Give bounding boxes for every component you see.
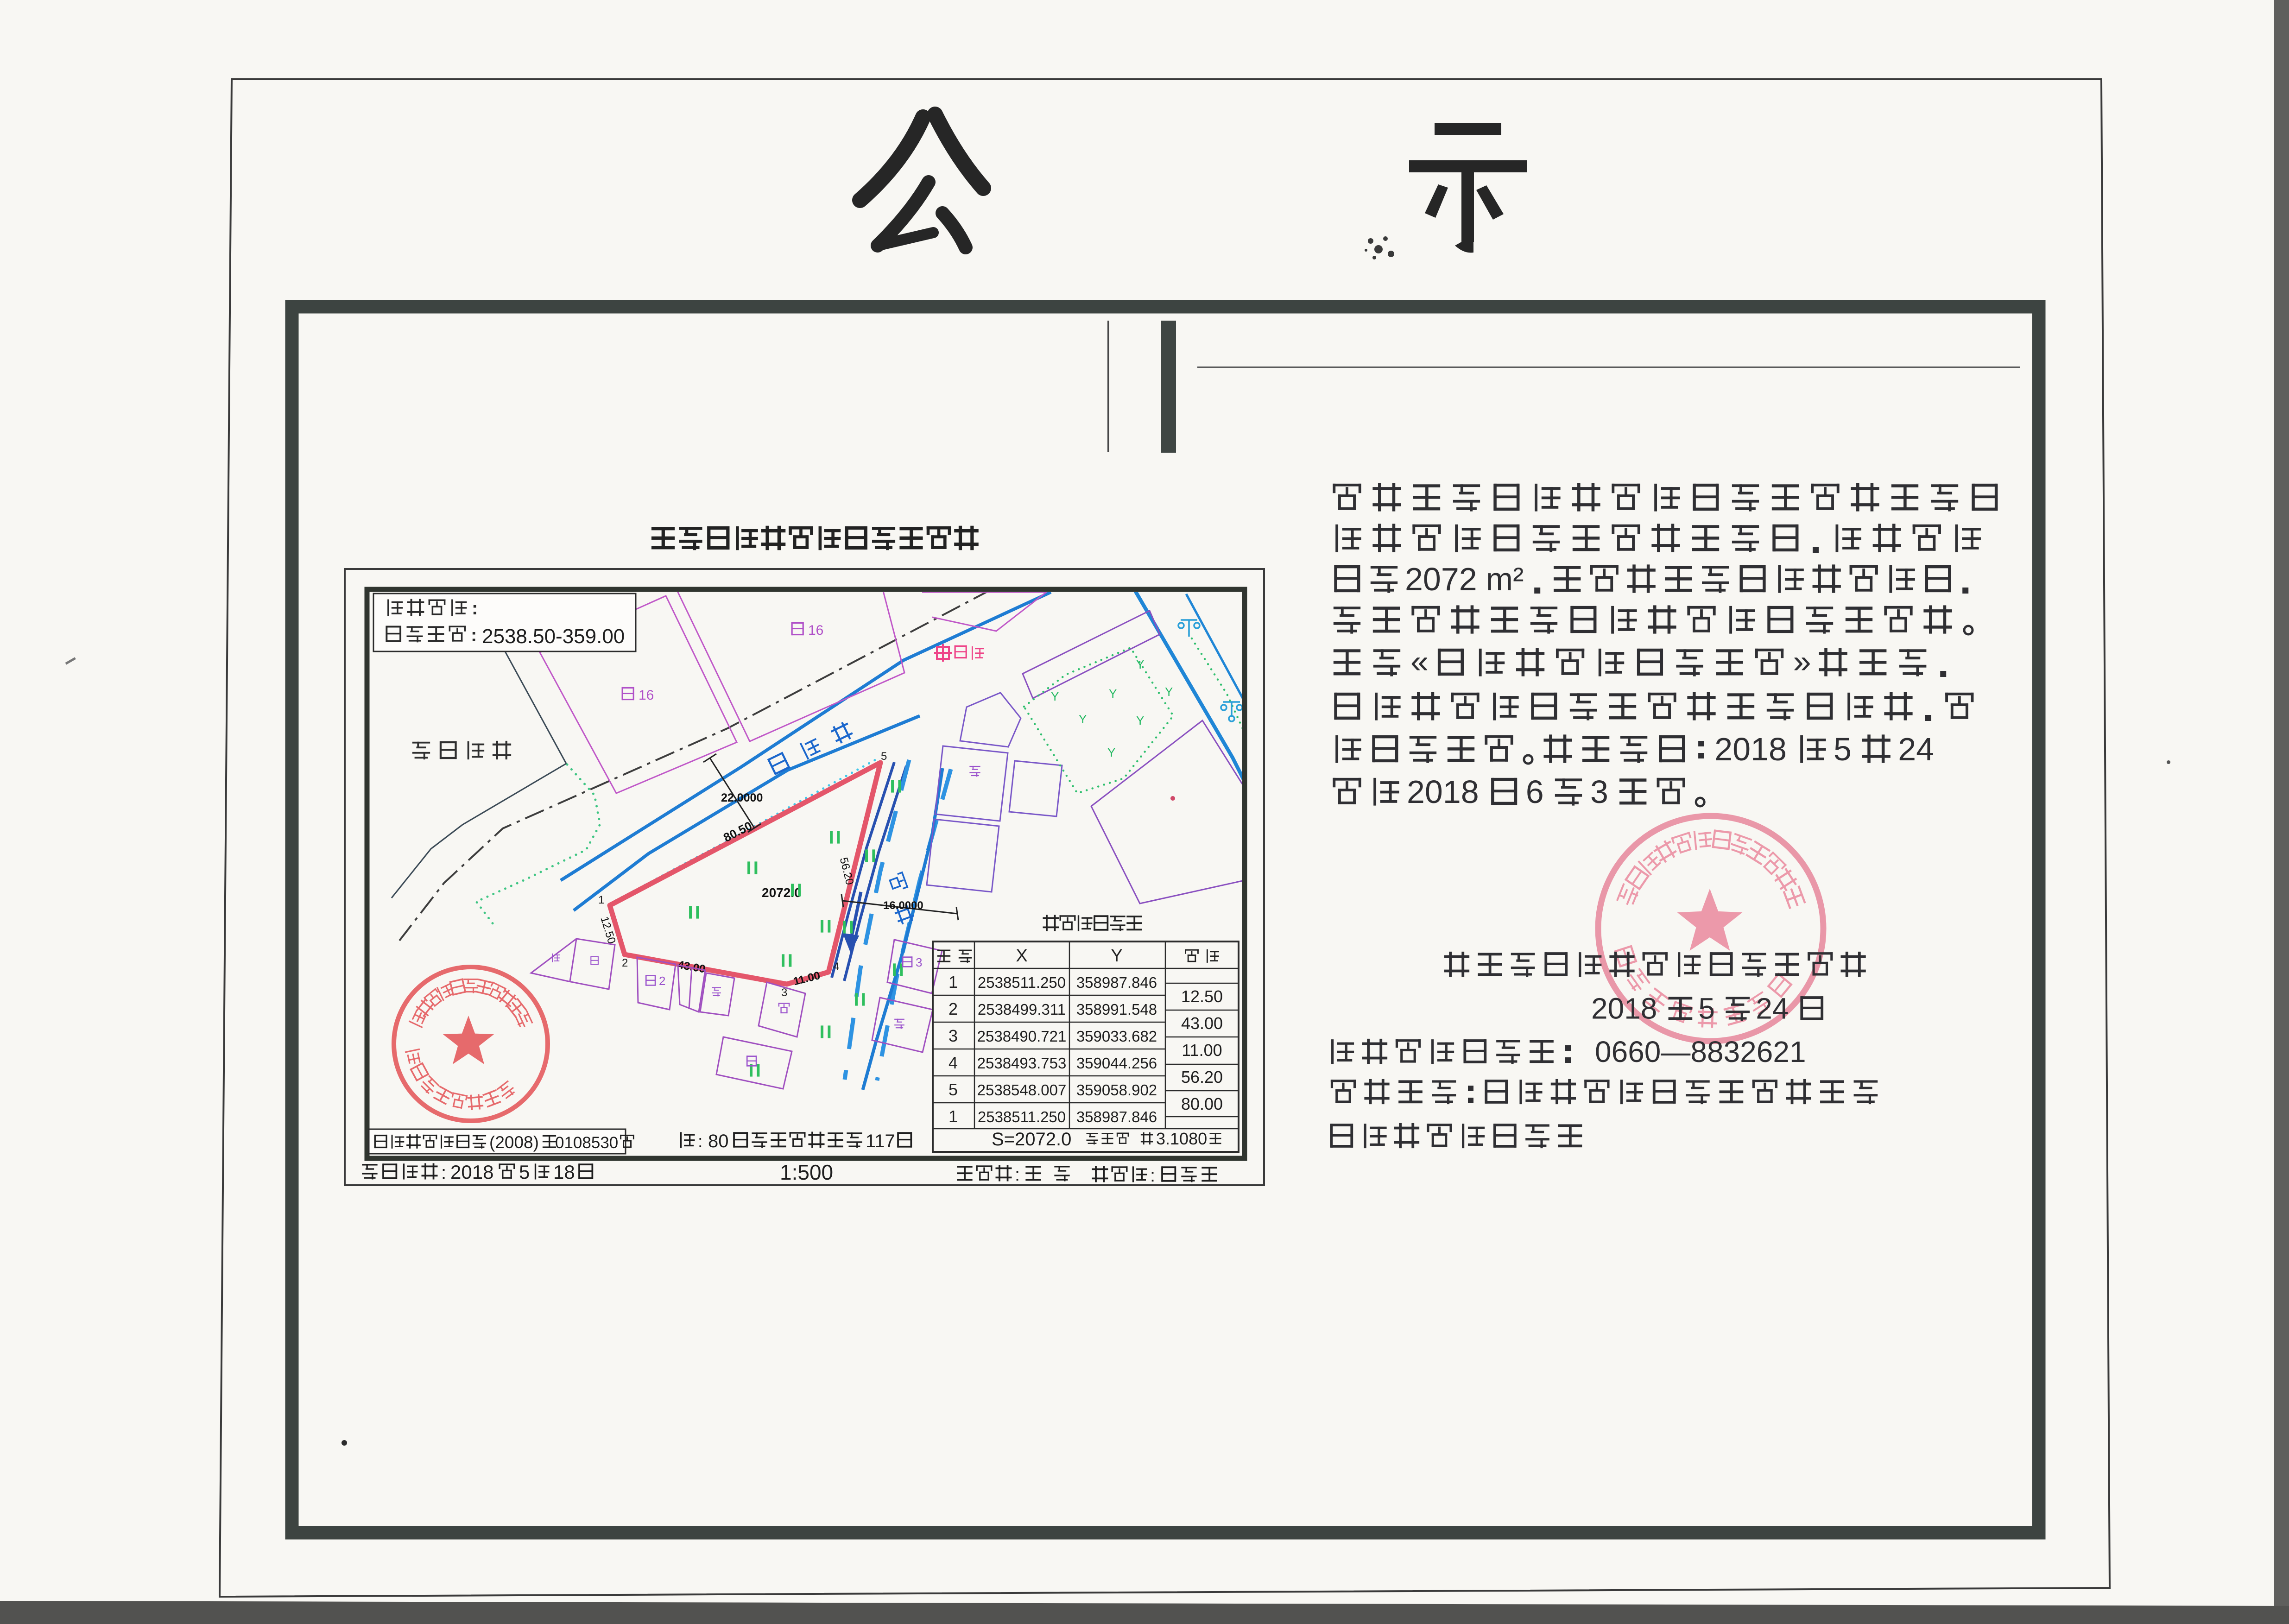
svg-text:5: 5 (1698, 992, 1715, 1025)
svg-text:117: 117 (866, 1131, 895, 1151)
svg-text:Y: Y (1165, 685, 1173, 699)
svg-text:2538.50-359.00: 2538.50-359.00 (482, 625, 625, 648)
svg-text:12.50: 12.50 (1181, 987, 1223, 1006)
svg-text:2538490.721: 2538490.721 (977, 1028, 1067, 1045)
svg-text:22.0000: 22.0000 (721, 791, 763, 804)
svg-text:4: 4 (833, 960, 839, 973)
svg-text:2538548.007: 2538548.007 (977, 1081, 1067, 1099)
svg-text:5: 5 (881, 750, 887, 763)
svg-text:359044.256: 359044.256 (1076, 1055, 1157, 1072)
svg-text:358991.548: 358991.548 (1076, 1001, 1157, 1018)
svg-text:11.00: 11.00 (1182, 1041, 1222, 1060)
svg-text:24: 24 (1756, 992, 1789, 1025)
svg-text:2018: 2018 (1407, 774, 1479, 810)
svg-text::: : (698, 1132, 703, 1151)
svg-text:358987.846: 358987.846 (1076, 1108, 1157, 1125)
svg-text:2538493.753: 2538493.753 (977, 1055, 1067, 1072)
svg-text:2072.0: 2072.0 (762, 885, 802, 900)
svg-text:Y: Y (1136, 657, 1144, 671)
svg-text:5: 5 (519, 1161, 530, 1183)
svg-text:2538511.250: 2538511.250 (978, 1108, 1066, 1125)
svg-text:1: 1 (948, 1107, 958, 1126)
svg-text:2: 2 (948, 999, 958, 1018)
svg-text:1: 1 (948, 973, 958, 992)
svg-text:1:500: 1:500 (780, 1160, 833, 1184)
svg-text:2018: 2018 (450, 1161, 493, 1183)
svg-text:3: 3 (948, 1026, 958, 1045)
svg-text:Y: Y (1079, 712, 1087, 726)
svg-text:Y: Y (1109, 687, 1117, 701)
svg-text:5: 5 (1834, 731, 1852, 767)
svg-text:80: 80 (708, 1131, 729, 1151)
svg-text:»: » (1793, 643, 1811, 679)
svg-text:S=2072.0: S=2072.0 (992, 1129, 1071, 1150)
svg-text:6: 6 (1526, 774, 1544, 810)
svg-text:Y: Y (1111, 946, 1122, 966)
svg-text:Y: Y (1051, 689, 1059, 703)
svg-text:56.20: 56.20 (1181, 1068, 1223, 1087)
svg-text:m²: m² (1486, 561, 1524, 597)
svg-text:4: 4 (948, 1053, 958, 1072)
svg-text:2: 2 (659, 974, 665, 988)
svg-text:2072: 2072 (1405, 561, 1477, 597)
svg-text:43.00: 43.00 (1181, 1014, 1223, 1033)
svg-text:5: 5 (948, 1080, 958, 1099)
svg-text:359033.682: 359033.682 (1076, 1028, 1157, 1045)
svg-text:16: 16 (639, 688, 654, 703)
svg-text:16.0000: 16.0000 (883, 899, 923, 912)
svg-text:80.00: 80.00 (1181, 1094, 1223, 1113)
svg-text:Y: Y (1107, 746, 1115, 759)
svg-text:3: 3 (916, 955, 922, 969)
svg-text:2018: 2018 (1714, 731, 1787, 767)
svg-text::: : (471, 625, 477, 645)
svg-text:0108530: 0108530 (555, 1134, 618, 1152)
svg-text:«: « (1410, 643, 1429, 679)
svg-text::: : (1150, 1165, 1155, 1186)
svg-text:1: 1 (598, 894, 604, 906)
svg-text:3: 3 (1590, 774, 1608, 810)
svg-text:24: 24 (1898, 731, 1934, 767)
svg-text:0660—8832621: 0660—8832621 (1595, 1035, 1806, 1068)
svg-text:16: 16 (808, 623, 823, 638)
svg-text::: : (472, 598, 478, 619)
svg-text:2018: 2018 (1591, 992, 1657, 1025)
svg-text::: : (441, 1163, 446, 1183)
svg-text:3.1080: 3.1080 (1156, 1129, 1207, 1148)
svg-text:Y: Y (1136, 714, 1144, 727)
svg-text::: : (1015, 1164, 1020, 1185)
svg-text:X: X (1016, 946, 1027, 966)
svg-text:358987.846: 358987.846 (1076, 974, 1157, 991)
svg-text:359058.902: 359058.902 (1076, 1081, 1157, 1099)
svg-text:(2008): (2008) (489, 1133, 539, 1152)
svg-text:18: 18 (553, 1161, 575, 1183)
svg-text:2538511.250: 2538511.250 (978, 974, 1066, 991)
svg-text:2: 2 (622, 957, 628, 969)
svg-text:2538499.311: 2538499.311 (978, 1001, 1066, 1018)
